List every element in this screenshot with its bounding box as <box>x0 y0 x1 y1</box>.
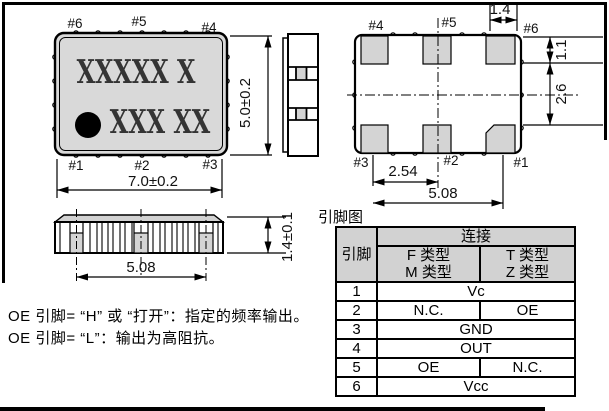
pad-1-chamfered <box>486 125 515 153</box>
pad-5 <box>423 36 451 64</box>
pad-4 <box>361 36 388 64</box>
front-dim-span-text: 5.08 <box>126 259 155 276</box>
top-view-pin4-label: #4 <box>201 20 217 35</box>
marking-text-line2: XXX XX <box>110 102 211 141</box>
front-view-lid <box>55 215 223 222</box>
header-t-type: T 类型 <box>481 247 574 264</box>
dim-col-pitch-text: 2.54 <box>388 163 417 180</box>
pin-number: 2 <box>336 301 377 320</box>
dim-pad-height-text: 1.1 <box>553 40 570 61</box>
marking-text-line1: XXXXX X <box>77 52 196 91</box>
bottom-view-pin5-label: #5 <box>441 15 456 30</box>
oe-note-line2: OE 引脚= “L”：输出为高阻抗。 <box>8 328 309 350</box>
pin-number: 6 <box>336 377 377 396</box>
pin-connection: Vcc <box>377 377 575 396</box>
table-row: 2 N.C. OE <box>336 301 575 320</box>
table-row: 1 Vc <box>336 282 575 301</box>
pin-connection-f: N.C. <box>377 301 480 320</box>
table-row: 6 Vcc <box>336 377 575 396</box>
dim-span-text: 5.08 <box>428 185 457 202</box>
pin-connection-t: OE <box>480 301 575 320</box>
header-connection-cell: 连接 <box>377 227 575 246</box>
pin-number: 1 <box>336 282 377 301</box>
top-view-drawing: XXXXX X XXX XX #6 #5 #4 #1 #2 #3 7.0±0.2… <box>40 12 285 204</box>
pin-connection: OUT <box>377 339 575 358</box>
side-view-body <box>288 34 318 156</box>
bottom-view-drawing: #4 #5 #6 #3 #2 #1 1.4 1.1 2.6 2.54 5.08 <box>345 2 607 212</box>
front-dim-height-text: 1.4±0.1 <box>279 212 296 262</box>
dim-row-pitch-text: 2.6 <box>553 84 570 105</box>
header-m-type: M 类型 <box>378 264 479 281</box>
header-pin-cell: 引脚 <box>336 227 377 282</box>
bottom-view-pin1-label: #1 <box>513 155 528 170</box>
pin-table-title: 引脚图 <box>318 206 363 227</box>
pin-connection: GND <box>377 320 575 339</box>
pad-2 <box>423 125 451 153</box>
pin1-index-dot <box>75 112 101 138</box>
oe-notes: OE 引脚= “H” 或 “打开”：指定的频率输出。 OE 引脚= “L”：输出… <box>8 306 309 350</box>
front-dim-height-lines <box>227 217 286 253</box>
dim-pad-width-text: 1.4 <box>490 2 511 18</box>
top-view-pin2-label: #2 <box>134 158 149 173</box>
dim-width-text: 7.0±0.2 <box>128 173 178 190</box>
header-fm-type-cell: F 类型 M 类型 <box>377 246 480 282</box>
pad-6 <box>486 36 515 64</box>
bottom-view-pin6-label: #6 <box>523 21 538 36</box>
front-view-drawing: 5.08 1.4±0.1 <box>40 205 308 290</box>
top-view-pin5-label: #5 <box>131 14 146 29</box>
table-row: 3 GND <box>336 320 575 339</box>
header-z-type: Z 类型 <box>481 264 574 281</box>
pad-3 <box>361 125 388 153</box>
top-view-pin3-label: #3 <box>202 157 217 172</box>
pin-number: 3 <box>336 320 377 339</box>
bottom-view-pin3-label: #3 <box>353 155 368 170</box>
table-row: 4 OUT <box>336 339 575 358</box>
pin-connection-f: OE <box>377 358 480 377</box>
table-row: 5 OE N.C. <box>336 358 575 377</box>
pin-connection: Vc <box>377 282 575 301</box>
bottom-view-pin4-label: #4 <box>368 18 384 33</box>
oe-note-line1: OE 引脚= “H” 或 “打开”：指定的频率输出。 <box>8 306 309 328</box>
frame-left-border <box>2 2 5 283</box>
pin-connection-table: 引脚 连接 F 类型 M 类型 T 类型 Z 类型 1 Vc 2 N.C. OE… <box>335 226 576 397</box>
top-view-pin6-label: #6 <box>67 16 82 31</box>
top-view-pin1-label: #1 <box>68 158 83 173</box>
header-f-type: F 类型 <box>378 247 479 264</box>
side-view-drawing <box>280 30 325 160</box>
bottom-view-pin2-label: #2 <box>443 153 458 168</box>
pin-number: 5 <box>336 358 377 377</box>
frame-bottom-bar <box>0 407 545 411</box>
dim-height-text: 5.0±0.2 <box>237 78 254 128</box>
pin-number: 4 <box>336 339 377 358</box>
pin-connection-t: N.C. <box>480 358 575 377</box>
header-tz-type-cell: T 类型 Z 类型 <box>480 246 575 282</box>
datasheet-page: XXXXX X XXX XX #6 #5 #4 #1 #2 #3 7.0±0.2… <box>0 0 609 411</box>
